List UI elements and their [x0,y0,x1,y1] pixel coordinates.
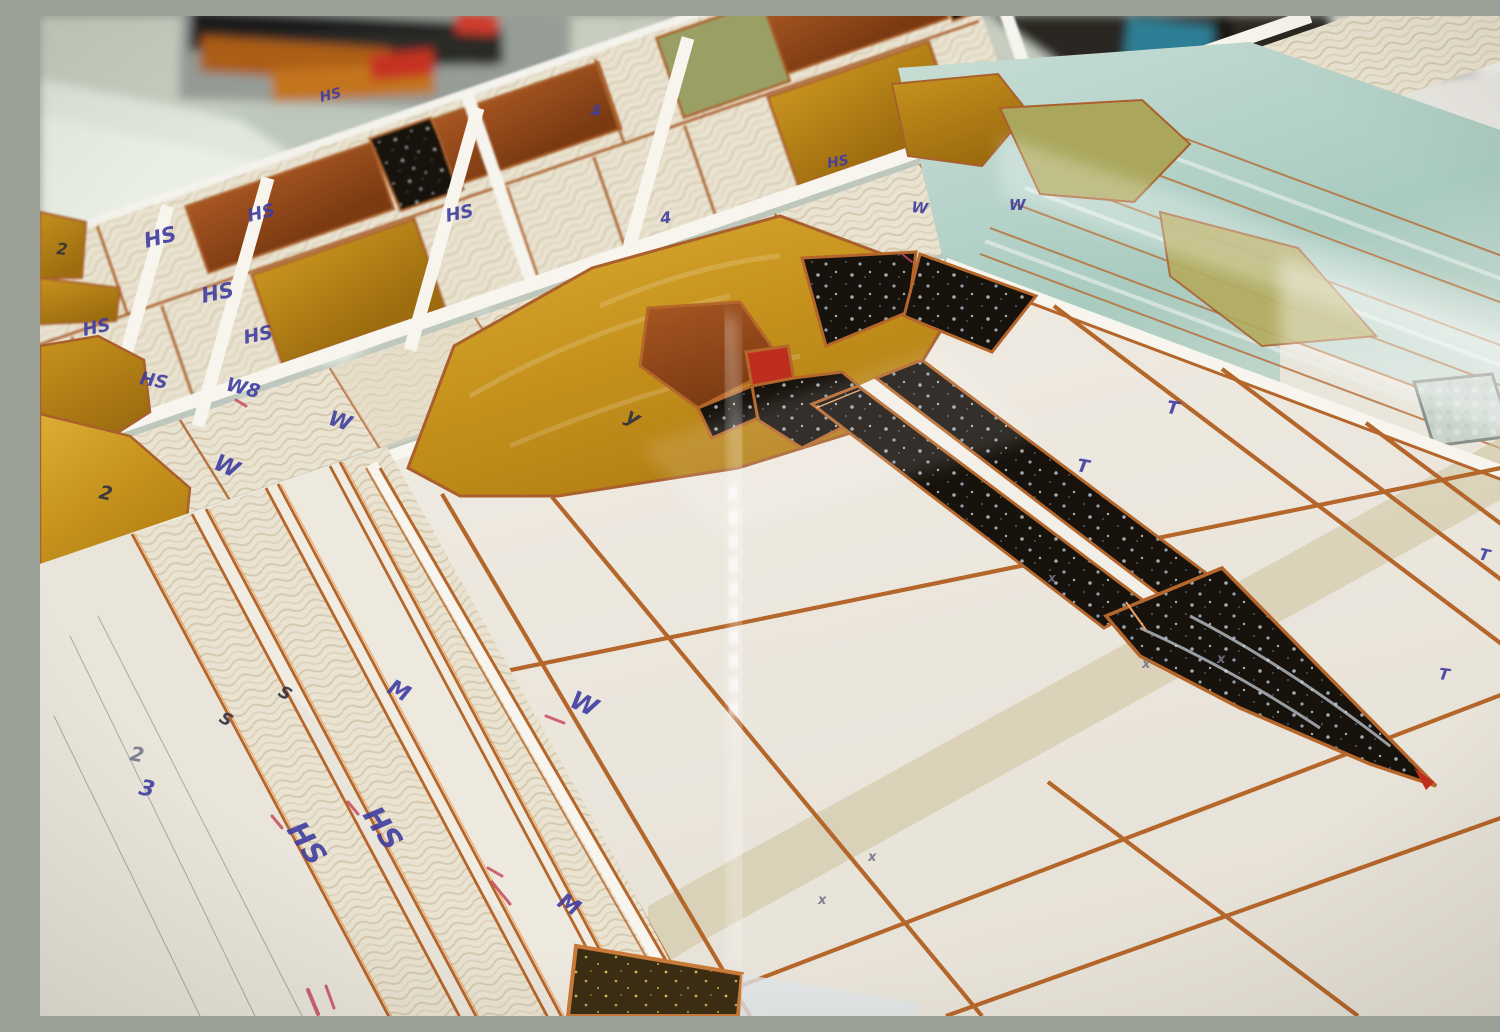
stained-glass-scene: HSHSHSHSHSHSHSHSHS442W8WWWW2SSHSHSMWM23y… [40,16,1500,1016]
workshop-photo: HSHSHSHSHSHSHSHSHS442W8WWWW2SSHSHSMWM23y… [40,16,1500,1016]
vignette [40,16,1500,1016]
